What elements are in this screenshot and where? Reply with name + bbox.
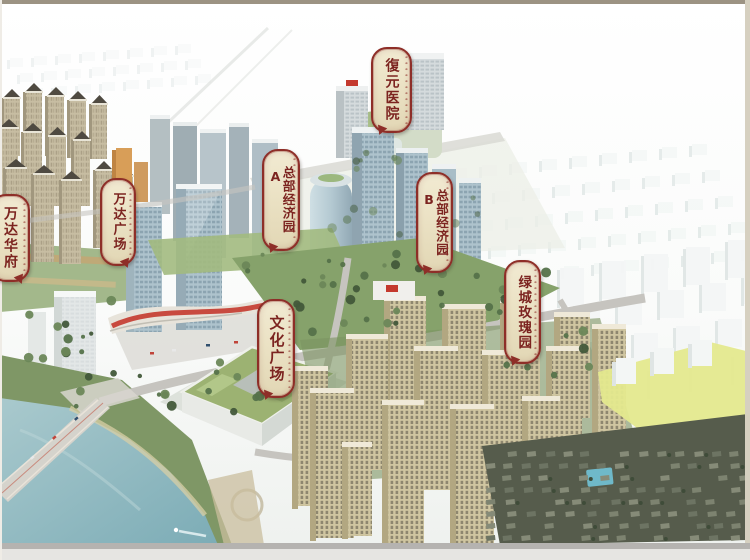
label-dot-ornament — [293, 158, 296, 242]
label-dot-ornament — [129, 187, 132, 257]
label-dot-ornament — [446, 181, 449, 264]
label-text: 復元医院 — [385, 58, 399, 122]
label-text: 总部经济园A — [269, 166, 294, 234]
label-text: 总部经济园B — [422, 189, 447, 257]
label-text: 文化广场 — [269, 315, 284, 383]
boat — [174, 528, 178, 532]
label-dot-ornament — [405, 56, 408, 124]
aerial-rendering-photo: 復元医院 万达华府 万达广场 总部经济园A 总部经济园B 文化广场 绿城玫瑰园 — [0, 0, 750, 560]
label-text: 绿城玫瑰园 — [516, 275, 530, 350]
label-dot-ornament — [288, 308, 291, 389]
label-text: 万达广场 — [112, 192, 125, 252]
map-label-culture-plaza: 文化广场 — [257, 299, 295, 398]
park-pavilion — [373, 281, 415, 300]
map-label-wanda-huafu: 万达华府 — [0, 194, 30, 282]
map-label-fuyuan-hospital: 復元医院 — [371, 47, 412, 133]
label-dot-ornament — [534, 269, 537, 355]
label-suffix: B — [422, 192, 435, 257]
map-label-greentown-rose-garden: 绿城玫瑰园 — [504, 260, 541, 364]
map-label-hq-economic-park-b: 总部经济园B — [416, 172, 453, 273]
label-dot-ornament — [23, 203, 26, 273]
label-suffix: A — [269, 169, 282, 234]
map-label-wanda-plaza: 万达广场 — [100, 178, 136, 266]
map-label-hq-economic-park-a: 总部经济园A — [262, 149, 300, 251]
label-text: 万达华府 — [3, 206, 17, 270]
